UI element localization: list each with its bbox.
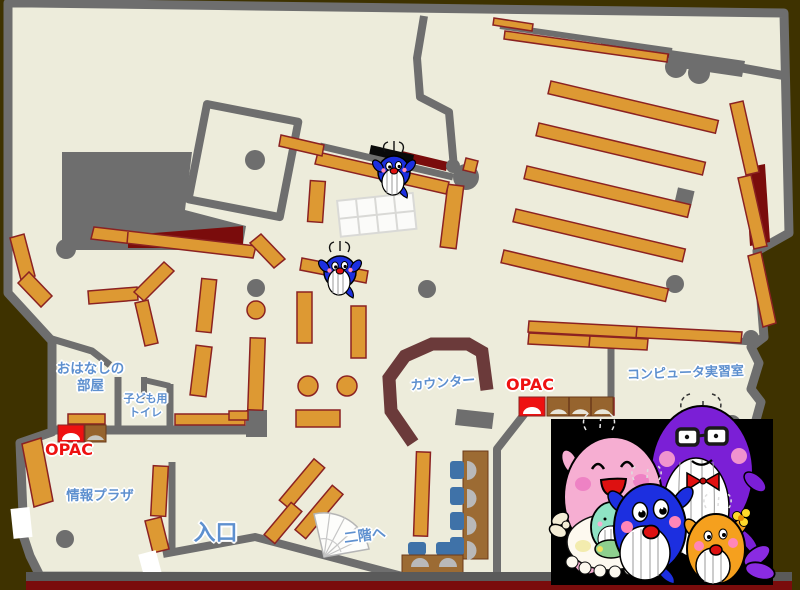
label-info-plaza: 情報プラザ (40, 488, 160, 505)
mascot-panel (547, 394, 776, 585)
reading-tables-grid (336, 192, 418, 238)
top-left-room (188, 104, 298, 217)
library-floor-map: おはなしの 部屋 子ども用 トイレ OPAC 情報プラザ 入口 二階へ カウンタ… (0, 0, 800, 590)
label-opac-children: OPAC (45, 440, 93, 460)
label-opac-center: OPAC (506, 375, 554, 395)
opac-terminals-center (519, 397, 613, 416)
label-kids-toilet: 子ども用 トイレ (103, 392, 188, 420)
label-story-room: おはなしの 部屋 (38, 361, 143, 395)
label-entrance: 入口 (168, 520, 263, 548)
